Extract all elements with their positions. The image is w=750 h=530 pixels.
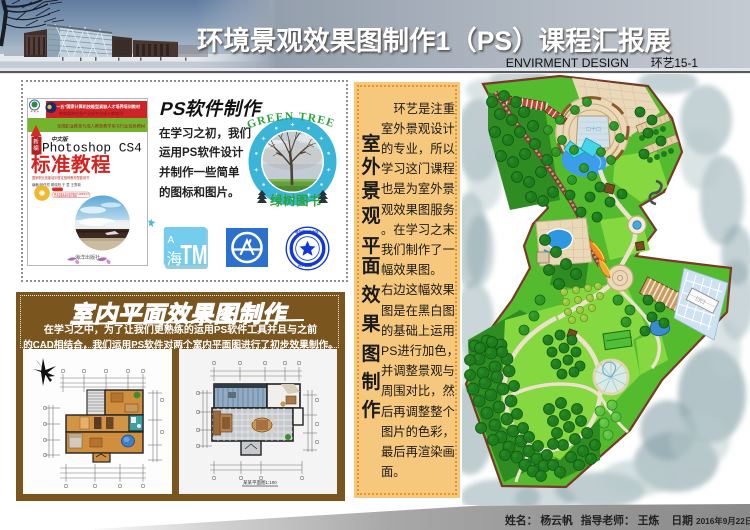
svg-text:TM: TM	[181, 239, 208, 269]
svg-text:哈尔滨工业大学: 哈尔滨工业大学	[295, 229, 319, 234]
svg-text:海: 海	[167, 250, 183, 268]
svg-text:标准教程: 标准教程	[30, 153, 111, 176]
svg-text:★★★: ★★★	[30, 110, 40, 114]
svg-text:绿树图书: 绿树图书	[270, 193, 322, 208]
svg-text:某某平面图1:100: 某某平面图1:100	[243, 480, 277, 486]
svg-text:新: 新	[33, 138, 39, 146]
svg-text:全国职业教育与成人教育教学用书行业资质教材: 全国职业教育与成人教育教学用书行业资质教材	[57, 123, 145, 130]
svg-text:国家职业技能培训鉴定推荐教材配套用书: 国家职业技能培训鉴定推荐教材配套用书	[32, 175, 90, 180]
svg-text:海洋出版社: 海洋出版社	[75, 254, 100, 261]
svg-text:口十口: 口十口	[586, 126, 601, 133]
svg-text:A: A	[168, 235, 175, 246]
svg-text:“十一五”国家计算机技能型紧缺人才培养培训教材: “十一五”国家计算机技能型紧缺人才培养培训教材	[50, 103, 140, 109]
svg-text:教育部和信息产业部专业成人教育司: 教育部和信息产业部专业成人教育司	[59, 110, 123, 116]
svg-text:编: 编	[33, 144, 39, 152]
svg-text:HIT 1920: HIT 1920	[298, 264, 312, 268]
